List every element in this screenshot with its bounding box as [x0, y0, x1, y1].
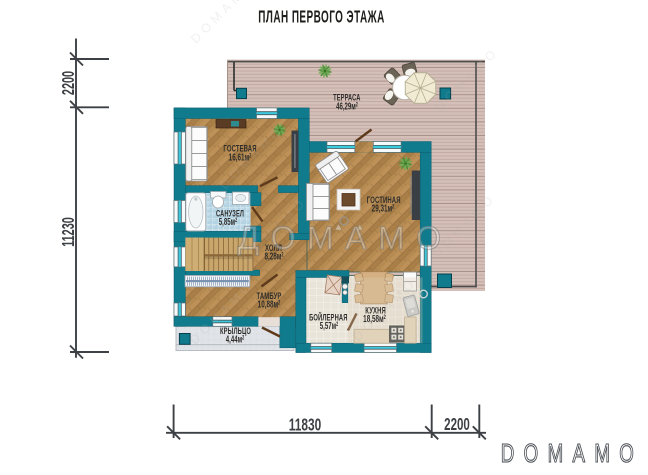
svg-text:5,85м2: 5,85м2 [219, 217, 238, 228]
svg-text:29,31м2: 29,31м2 [372, 202, 395, 214]
svg-text:46,29м2: 46,29м2 [336, 101, 358, 112]
svg-text:2200: 2200 [444, 416, 470, 435]
svg-text:4,44м2: 4,44м2 [226, 334, 245, 345]
svg-text:11230: 11230 [60, 217, 79, 247]
svg-text:ДОМАМО: ДОМАМО [237, 220, 452, 256]
svg-text:ПЛАН ПЕРВОГО ЭТАЖА: ПЛАН ПЕРВОГО ЭТАЖА [258, 8, 384, 28]
svg-text:DOMAMO: DOMAMO [501, 438, 643, 468]
svg-text:10,88м2: 10,88м2 [258, 298, 281, 310]
svg-text:11830: 11830 [289, 415, 321, 435]
svg-text:2200: 2200 [60, 71, 79, 95]
svg-text:5,57м2: 5,57м2 [320, 320, 339, 331]
